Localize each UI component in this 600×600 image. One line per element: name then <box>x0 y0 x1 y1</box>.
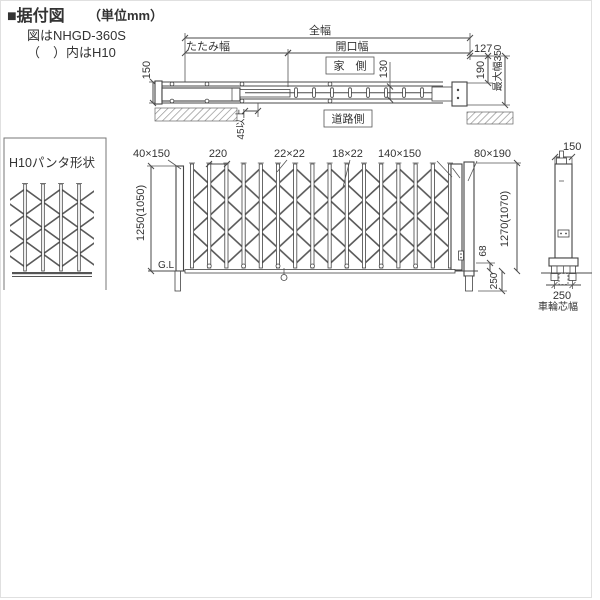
dim-offset-127: 127 <box>474 43 492 55</box>
elevation-view: 40×150 220 22×22 18×22 140×150 80×190 15… <box>133 141 592 313</box>
dim-right-post: 140×150 <box>378 148 421 160</box>
plan-view: 全幅 たたみ幅 開口幅 150 130 127 190 最大幅350 45以上 … <box>141 23 513 140</box>
dim-bar-small: 18×22 <box>332 148 363 160</box>
caster-post-detail <box>541 151 592 285</box>
header: ■据付図 （単位mm） 図はNHGD-360S （ ）内はH10 <box>7 6 163 60</box>
dim-fold-width: たたみ幅 <box>186 40 230 53</box>
plan-wall-right <box>467 112 513 124</box>
dim-post-190: 190 <box>475 61 487 79</box>
pantograph-box: H10パンタ形状 <box>4 138 106 290</box>
dim-wheel-width: 250 <box>553 290 571 302</box>
road-side-label: 道路側 <box>324 110 372 127</box>
dim-rail-130: 130 <box>378 60 390 78</box>
elevation-left-post <box>175 166 184 291</box>
dim-support-post: 80×190 <box>474 148 511 160</box>
dim-caster-post-width: 150 <box>563 141 581 153</box>
pantograph-title: H10パンタ形状 <box>9 156 96 170</box>
dim-max-350: 最大幅350 <box>491 44 504 91</box>
house-side-text: 家 側 <box>334 59 367 73</box>
dim-left-post: 40×150 <box>133 148 170 160</box>
page-title: ■据付図 <box>7 6 65 25</box>
lattice-bottom-rollers <box>207 264 417 268</box>
page-title-unit: （単位mm） <box>88 8 163 23</box>
elevation-ground <box>148 268 478 281</box>
plan-wall-left <box>155 108 237 121</box>
elevation-lattice <box>189 163 453 268</box>
dim-gap-68: 68 <box>478 245 489 257</box>
installation-diagram-page: ■据付図 （単位mm） 図はNHGD-360S （ ）内はH10 <box>0 0 600 600</box>
plan-gate-drawing <box>155 81 467 106</box>
dim-height-right: 1270(1070) <box>499 191 511 247</box>
dim-rail-150: 150 <box>141 61 153 79</box>
model-note: 図はNHGD-360S <box>27 28 126 43</box>
dim-opening-width: 開口幅 <box>336 40 369 53</box>
dim-bar-large: 22×22 <box>274 148 305 160</box>
dim-total-width: 全幅 <box>309 23 331 37</box>
height-note: （ ）内はH10 <box>27 45 116 60</box>
diagram-canvas: ■据付図 （単位mm） 図はNHGD-360S （ ）内はH10 <box>0 0 600 600</box>
dim-pitch: 220 <box>209 148 227 160</box>
dim-embed-depth: 250 <box>489 272 500 289</box>
ground-level-label: G.L <box>158 260 175 271</box>
dim-height-left: 1250(1050) <box>135 185 147 241</box>
pantograph-drawing <box>10 184 94 277</box>
wheel-width-label: 車輪芯幅 <box>538 300 578 313</box>
house-side-label: 家 側 <box>326 57 374 74</box>
road-side-text: 道路側 <box>332 112 365 126</box>
